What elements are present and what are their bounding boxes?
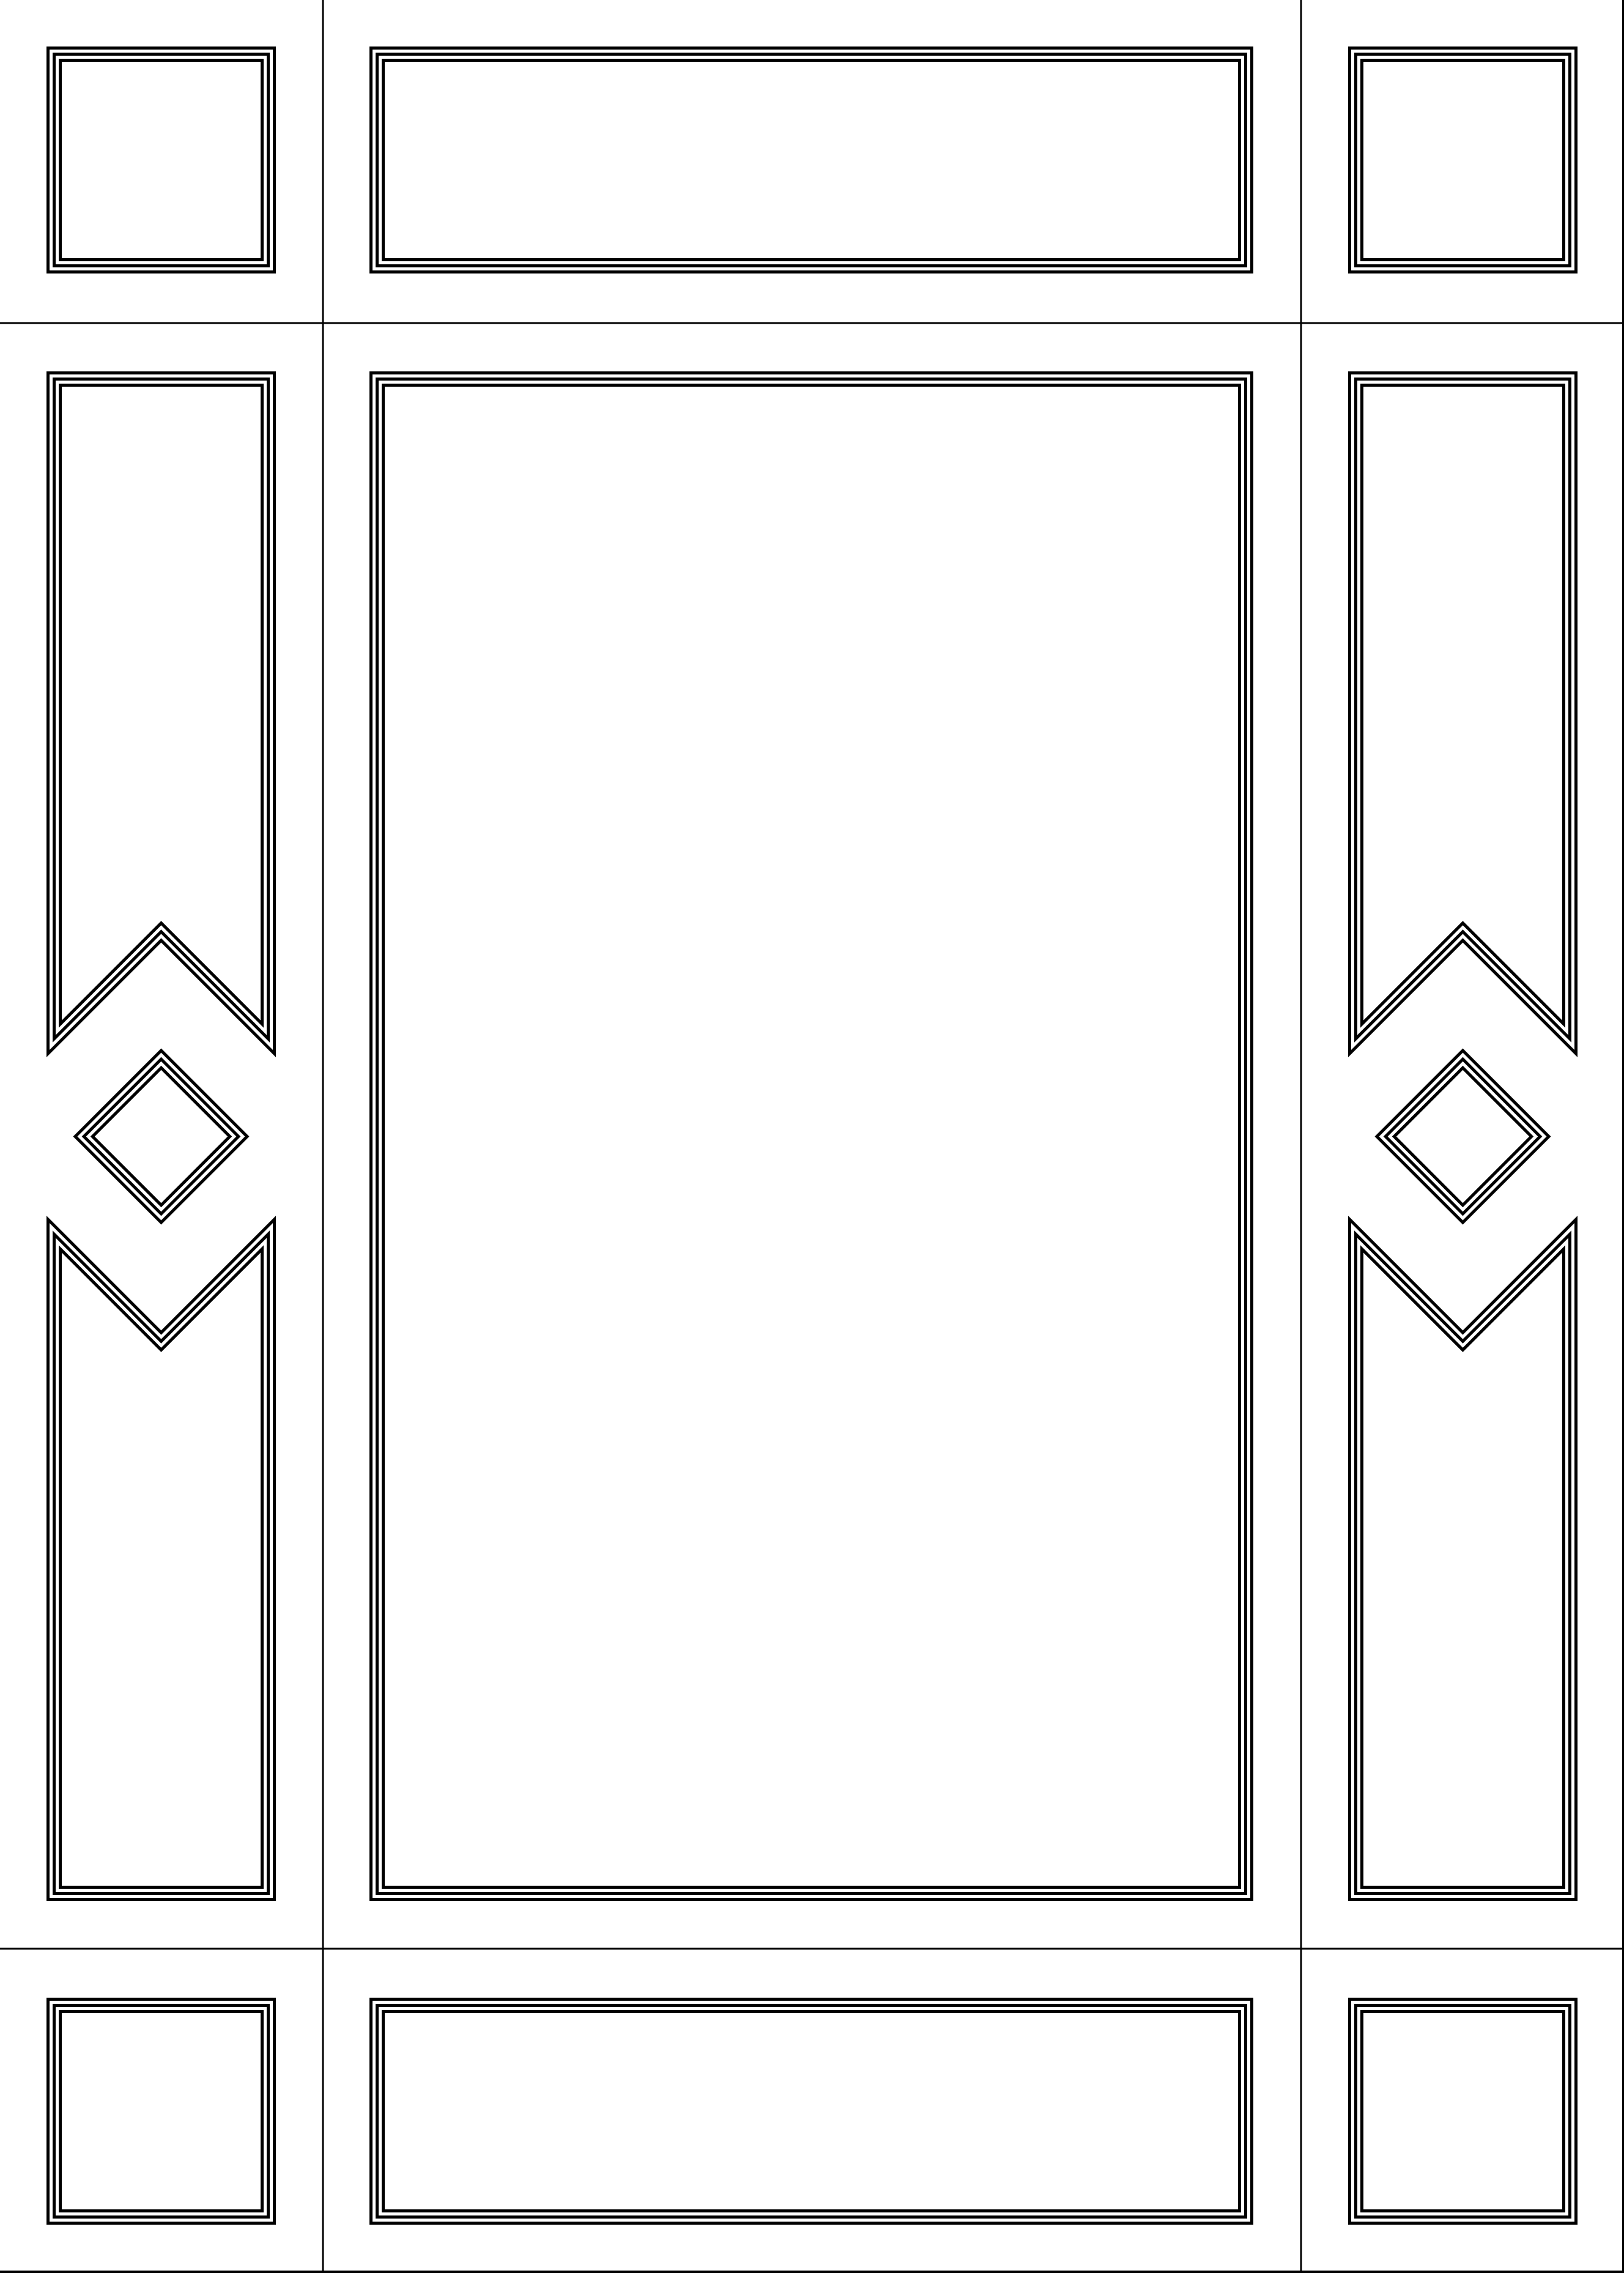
bottom-banner-panel xyxy=(371,2000,1252,2223)
right-diamond-medallion xyxy=(1377,1051,1549,1222)
right-upper-side-panel xyxy=(1350,373,1576,1054)
center-field-panel xyxy=(371,373,1252,1900)
left-diamond-medallion xyxy=(75,1051,247,1222)
top-right-corner-panel xyxy=(1350,48,1576,272)
template-sheet xyxy=(0,0,1624,2273)
bottom-right-corner-panel xyxy=(1350,2000,1576,2223)
sheet-edge-lines xyxy=(0,0,1624,2273)
panel-drawing-svg xyxy=(0,0,1624,2273)
bottom-left-corner-panel xyxy=(48,2000,275,2223)
top-left-corner-panel xyxy=(48,48,275,272)
top-banner-panel xyxy=(371,48,1252,272)
left-lower-side-panel xyxy=(48,1219,275,1899)
left-upper-side-panel xyxy=(48,373,275,1054)
right-lower-side-panel xyxy=(1350,1219,1576,1899)
grid-rules xyxy=(0,0,1624,2273)
